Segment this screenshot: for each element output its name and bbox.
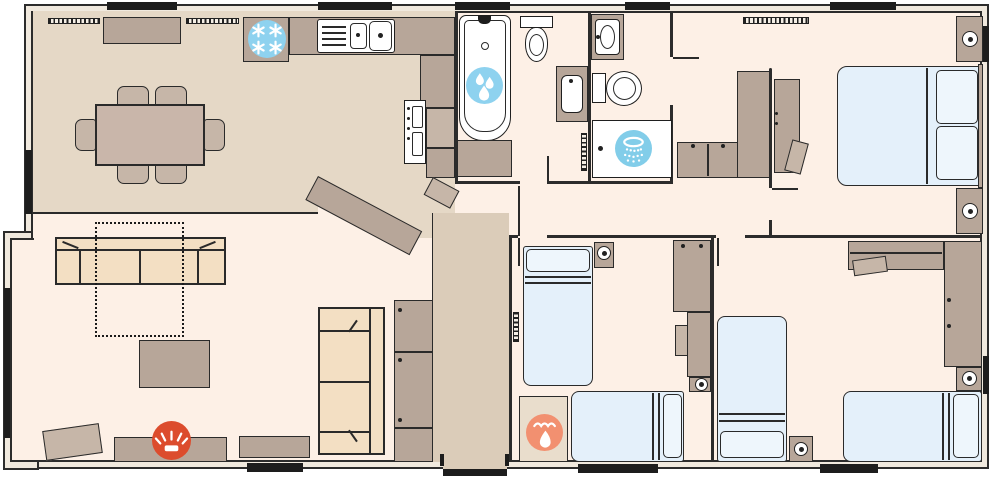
dining-chair — [204, 119, 225, 151]
bedside-lamp — [962, 371, 977, 386]
pillow — [720, 431, 784, 458]
wall-corridor-bottom-c — [745, 235, 772, 238]
sink-drain-dot — [356, 33, 360, 37]
flame-icon — [526, 414, 563, 451]
window-dining-left — [25, 150, 32, 214]
radiator — [48, 18, 100, 24]
bed-fold-line — [942, 393, 944, 460]
radiator — [581, 133, 587, 171]
desk-edge-line — [850, 252, 942, 254]
basin-tap — [569, 79, 573, 83]
sink-drain-dot — [378, 33, 383, 38]
dining-chair — [117, 163, 149, 184]
bath-end-panel — [457, 140, 512, 177]
hall-cupboard — [394, 352, 433, 428]
window-right-top — [983, 26, 989, 62]
bed-fold-line — [948, 393, 950, 460]
toilet-bowl-inner — [529, 34, 544, 56]
twin1-stool — [675, 325, 688, 356]
master-vanity-divider — [707, 144, 709, 176]
entrance-jamb — [505, 454, 509, 466]
sideboard — [103, 17, 181, 44]
pillow — [936, 126, 978, 180]
hallway-floor — [433, 213, 509, 462]
water-drops-icon — [466, 67, 503, 104]
master-wardrobe — [737, 71, 770, 178]
shower-door-handle — [598, 146, 603, 151]
bed-fold-line — [658, 393, 660, 460]
drainer-groove — [322, 26, 346, 28]
cupboard-knob — [947, 298, 951, 302]
bed-fold-line — [525, 282, 591, 284]
door-leaf-master — [772, 188, 798, 190]
wall-bathroom-bottom-right — [549, 181, 673, 184]
bedside-lamp — [962, 203, 978, 219]
ensuite-basin-bowl — [600, 25, 615, 49]
snowflake-icon — [248, 20, 286, 58]
window-right-bottom — [983, 356, 989, 394]
pillow — [953, 394, 979, 458]
entrance-jamb — [440, 454, 444, 466]
wall-bathroom-bottom-left — [455, 181, 520, 184]
ensuite-toilet-bowl-inner — [613, 77, 636, 100]
sofa-arm-line — [320, 431, 369, 433]
dining-lounge-floor-edge — [33, 212, 318, 214]
fire-glow-icon — [152, 421, 191, 460]
twin1-drawers — [687, 312, 711, 377]
sofa-back-line — [369, 309, 371, 453]
wall-hall-twin1 — [509, 235, 512, 462]
radiator — [186, 18, 239, 24]
door-leaf-corridor-entry — [518, 186, 520, 236]
exterior-step-bar — [820, 464, 878, 473]
door-leaf-bathroom — [547, 156, 549, 184]
cooker-hob — [412, 132, 423, 156]
dining-chair — [75, 119, 96, 151]
drainer-groove — [322, 38, 346, 40]
cooker-hob — [412, 106, 423, 128]
cupboard-knob — [681, 244, 685, 248]
exterior-vent-bar — [318, 2, 392, 10]
cupboard-knob — [775, 112, 778, 115]
door-leaf-twin1 — [518, 238, 520, 266]
coffee-table — [139, 340, 210, 388]
twin2-wardrobe — [944, 241, 982, 367]
cooker-knob — [407, 107, 410, 110]
door-leaf-twin2 — [717, 238, 719, 266]
dining-chair — [155, 163, 187, 184]
exterior-vent-bar — [107, 2, 177, 10]
sofa-bed-outline — [95, 222, 184, 337]
cupboard-knob — [699, 244, 703, 248]
cupboard-knob — [775, 122, 778, 125]
radiator — [513, 312, 519, 342]
cupboard-knob — [721, 144, 725, 148]
pillow — [663, 394, 682, 458]
cooker-knob — [407, 127, 410, 130]
bed-fold-line — [525, 276, 591, 278]
master-headboard — [978, 64, 983, 188]
wall-corridor-bottom-b — [547, 235, 716, 238]
cupboard-knob — [398, 358, 402, 362]
exterior-step-bar — [247, 463, 303, 472]
pillow — [526, 249, 590, 272]
twin1-wardrobe — [673, 240, 711, 312]
exterior-vent-bar — [625, 2, 670, 10]
pillow — [936, 70, 978, 124]
bed-fold-line — [652, 393, 654, 460]
exterior-vent-bar — [455, 2, 510, 10]
exterior-vent-bar — [830, 2, 896, 10]
wall-master-twin2 — [772, 235, 982, 238]
wall-ensuite-master-upper — [670, 11, 673, 57]
entrance-step — [443, 469, 507, 476]
kitchen-worktop-mid — [426, 108, 455, 148]
bed-fold-line — [719, 413, 785, 415]
ensuite-toilet-cistern — [592, 73, 606, 103]
sofa-cushion-line — [320, 381, 369, 383]
kitchen-base-unit — [426, 148, 455, 178]
entrance-door-opening — [443, 457, 507, 469]
shower-head-icon — [615, 130, 652, 167]
window-lounge-bay — [4, 288, 10, 438]
door-leaf-ensuite — [673, 57, 699, 59]
bedside-lamp — [962, 31, 978, 47]
sofa-arm-line — [79, 250, 81, 283]
drainer-groove — [322, 32, 346, 34]
sofa-arm-line — [320, 330, 369, 332]
exterior-step-bar — [578, 464, 658, 473]
bath-tap — [478, 15, 491, 24]
hall-cupboard — [394, 428, 433, 462]
wall-twin1-twin2 — [711, 235, 714, 462]
cooker-knob — [407, 117, 410, 120]
cooker-knob — [407, 137, 410, 140]
floorplan-canvas — [0, 0, 1000, 478]
bedside-lamp — [794, 442, 808, 456]
bath-overflow — [481, 42, 489, 50]
bed-fold-line — [719, 420, 785, 422]
radiator — [743, 17, 809, 24]
lounge-storage-unit — [239, 436, 310, 458]
sofa-arm-line — [197, 250, 199, 283]
ensuite-basin-tap — [596, 35, 600, 39]
cupboard-knob — [398, 418, 402, 422]
bed-fold-line — [926, 68, 928, 184]
cupboard-knob — [398, 308, 402, 312]
cupboard-knob — [947, 324, 951, 328]
wall-master-partition-stub — [769, 220, 772, 238]
drainer-groove — [322, 44, 346, 46]
cupboard-knob — [691, 144, 695, 148]
lounge-bay-floor — [10, 238, 34, 462]
dining-table — [95, 104, 205, 166]
bedside-lamp — [597, 246, 611, 260]
bedside-lamp — [695, 378, 708, 391]
